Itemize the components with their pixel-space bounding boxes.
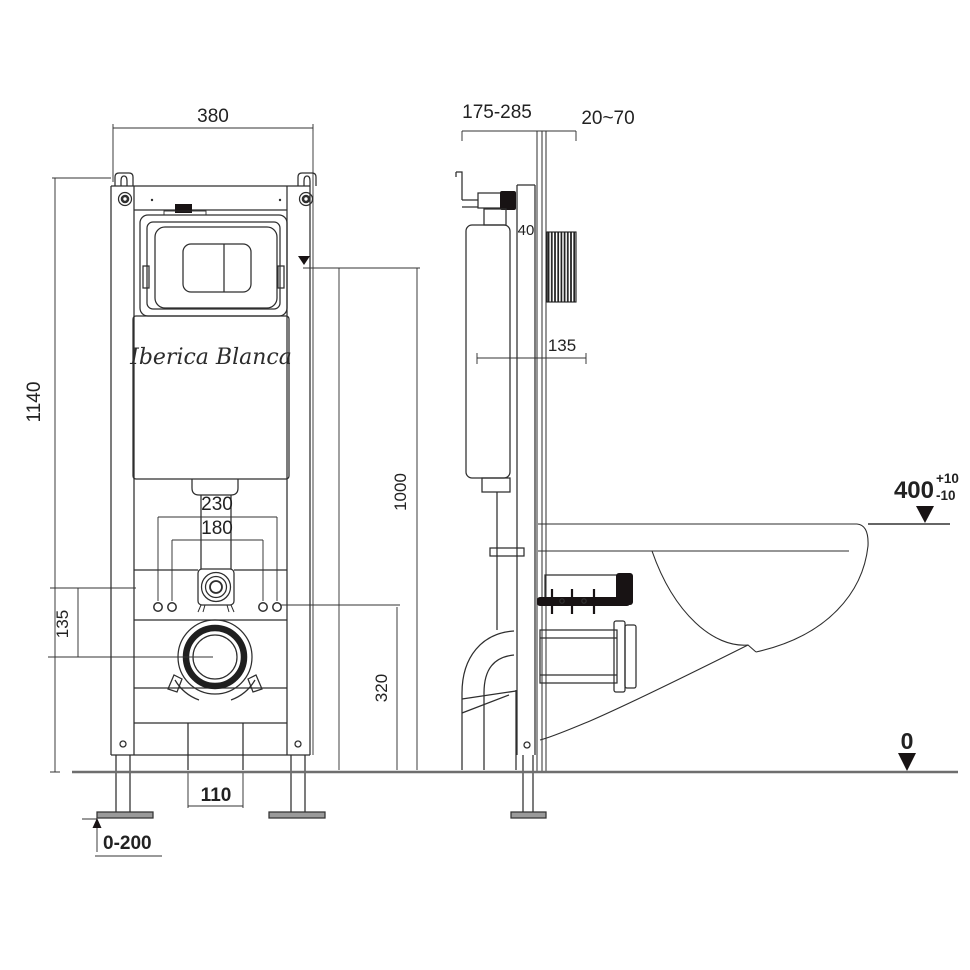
dim-320-label: 320 (372, 674, 391, 702)
installation-frame-drawing: 380 1140 135 230 180 320 1000 110 0-200 … (0, 0, 970, 970)
floor-datum-triangle (898, 753, 916, 771)
front-view (97, 131, 339, 818)
cistern-side (466, 209, 524, 630)
toilet-bowl-profile (538, 524, 868, 740)
flush-buttons (183, 244, 251, 292)
drain-connector (540, 621, 636, 692)
flush-plate-surround (140, 215, 287, 316)
datum-marks (93, 256, 935, 828)
dim-180-label: 180 (201, 518, 233, 539)
wall-bracket (456, 172, 516, 210)
brand-logo-text: Iberica Blanca (129, 345, 292, 370)
drain-template-box (188, 723, 243, 770)
drain-elbow (462, 631, 516, 770)
frame-profile-side (517, 185, 535, 755)
dim-1000-label: 1000 (391, 473, 410, 511)
dim-400-tol-minus: -10 (936, 488, 956, 503)
surround-clip-left (143, 266, 149, 288)
floor-datum-label: 0 (901, 728, 914, 754)
dim-380-label: 380 (197, 106, 229, 127)
frame-crossbars (111, 570, 310, 755)
actuator-level-mark (298, 256, 310, 265)
dim-20-70-label: 20~70 (581, 108, 634, 129)
fixing-holes (154, 603, 281, 611)
hanger-hooks (115, 173, 316, 186)
dim-400-label: 400 (894, 477, 934, 504)
dim-110-label: 110 (201, 785, 232, 806)
surround-clip-right (278, 266, 284, 288)
corner-bolts (119, 193, 313, 206)
dim-135-front-label: 135 (53, 610, 72, 638)
foot-plate-left (97, 812, 153, 818)
technical-drawing-canvas: 380 1140 135 230 180 320 1000 110 0-200 … (0, 0, 970, 970)
water-inlet-fitting (198, 569, 234, 612)
flush-plate (155, 227, 277, 308)
wall-recess-hatch (547, 232, 576, 302)
dim-400-tol-plus: +10 (936, 471, 959, 486)
dim-175-285-label: 175-285 (462, 102, 532, 123)
dim-0-200-label: 0-200 (103, 833, 152, 854)
dim-230-label: 230 (201, 494, 233, 515)
leg-adjust-arrow (93, 818, 102, 828)
dim-40-label: 40 (518, 222, 535, 239)
cistern-front (133, 316, 289, 479)
foot-plate-right (269, 812, 325, 818)
dim-1140-label: 1140 (24, 382, 45, 423)
dim-135-side-label: 135 (548, 336, 576, 355)
foot-plate-side (511, 812, 546, 818)
wall-lines (537, 131, 546, 772)
fixing-studs (537, 573, 633, 614)
rim-datum-triangle (916, 506, 934, 523)
dimension-lines (48, 124, 586, 856)
